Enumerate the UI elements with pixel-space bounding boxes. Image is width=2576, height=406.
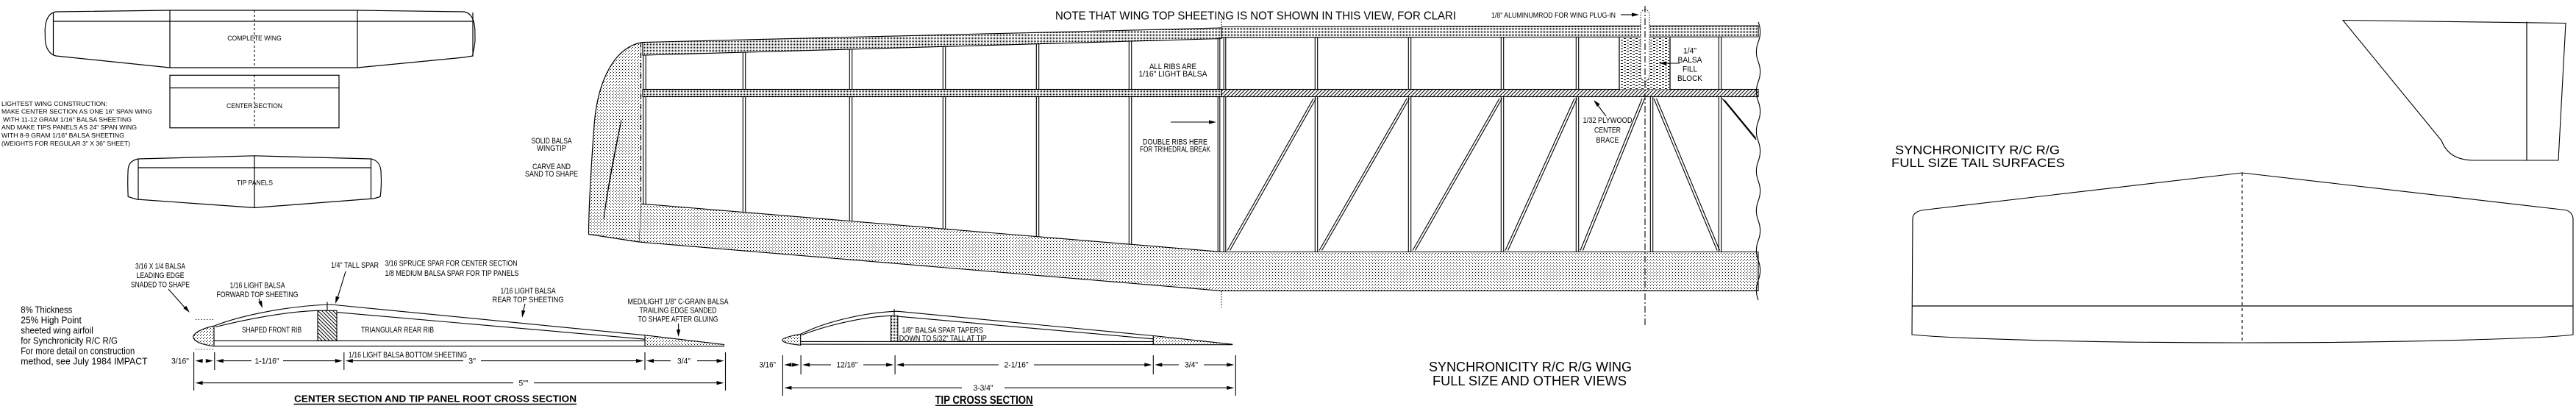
svg-text:SHAPED FRONT RIB: SHAPED FRONT RIB (242, 326, 302, 335)
svg-text:1/4": 1/4" (1683, 47, 1696, 56)
svg-text:3/16 SPRUCE SPAR FOR CENTER SE: 3/16 SPRUCE SPAR FOR CENTER SECTION (385, 260, 518, 268)
svg-text:1/8 MEDIUM BALSA SPAR FOR TIP: 1/8 MEDIUM BALSA SPAR FOR TIP PANELS (385, 269, 519, 278)
svg-text:1/16 LIGHT BALSA BOTTOM SHEETI: 1/16 LIGHT BALSA BOTTOM SHEETING (349, 351, 467, 360)
svg-text:1/32 PLYWOOD: 1/32 PLYWOOD (1583, 116, 1633, 125)
svg-text:WINGTIP: WINGTIP (537, 144, 566, 153)
svg-text:REAR TOP SHEETING: REAR TOP SHEETING (493, 296, 564, 304)
svg-text:12/16": 12/16" (837, 361, 858, 370)
svg-text:3/16": 3/16" (171, 357, 189, 366)
svg-text:1/16 LIGHT BALSA: 1/16 LIGHT BALSA (230, 282, 286, 291)
svg-text:For more detail on constructio: For more detail on construction (21, 346, 135, 357)
svg-text:25% High Point: 25% High Point (21, 315, 82, 326)
svg-text:(WEIGHTS FOR REGULAR 3" X 36": (WEIGHTS FOR REGULAR 3" X 36" SHEET) (1, 140, 130, 147)
svg-text:3/16 X 1/4 BALSA: 3/16 X 1/4 BALSA (135, 263, 186, 271)
svg-text:8% Thickness: 8% Thickness (21, 304, 72, 316)
svg-text:3/16": 3/16" (760, 361, 777, 370)
svg-text:NOTE THAT WING TOP SHEETING IS: NOTE THAT WING TOP SHEETING IS NOT SHOWN… (1055, 10, 1456, 23)
svg-text:DOWN TO 5/32" TALL AT TIP: DOWN TO 5/32" TALL AT TIP (899, 335, 987, 343)
svg-text:MAKE CENTER SECTION AS ONE 16": MAKE CENTER SECTION AS ONE 16" SPAN WING (1, 109, 152, 115)
svg-text:LIGHTEST WING CONSTRUCTION:: LIGHTEST WING CONSTRUCTION: (1, 101, 107, 107)
svg-text:1-1/16": 1-1/16" (255, 357, 279, 366)
svg-text:FILL: FILL (1683, 65, 1697, 74)
svg-text:TIP CROSS SECTION: TIP CROSS SECTION (935, 394, 1033, 406)
svg-text:FULL SIZE TAIL SURFACES: FULL SIZE TAIL SURFACES (1891, 156, 2065, 170)
svg-text:3/4": 3/4" (1185, 361, 1198, 370)
svg-text:TRAILING EDGE SANDED: TRAILING EDGE SANDED (640, 307, 717, 316)
svg-text:TRIANGULAR REAR RIB: TRIANGULAR REAR RIB (361, 326, 434, 335)
svg-text:1/8" BALSA SPAR TAPERS: 1/8" BALSA SPAR TAPERS (902, 326, 984, 335)
svg-text:TO SHAPE AFTER GLUING: TO SHAPE AFTER GLUING (638, 316, 718, 324)
svg-text:FORWARD TOP SHEETING: FORWARD TOP SHEETING (217, 291, 299, 299)
svg-text:CENTER: CENTER (1594, 126, 1621, 135)
svg-text:3/4": 3/4" (677, 357, 691, 366)
svg-text:SNADED TO SHAPE: SNADED TO SHAPE (131, 281, 190, 290)
svg-text:1/4" TALL SPAR: 1/4" TALL SPAR (331, 261, 379, 270)
svg-text:FOR TRIHEDRAL BREAK: FOR TRIHEDRAL BREAK (1140, 146, 1210, 154)
svg-text:COMPLETE WING: COMPLETE WING (227, 35, 282, 43)
svg-text:2-1/16": 2-1/16" (1005, 361, 1029, 370)
svg-text:FULL SIZE AND OTHER VIEWS: FULL SIZE AND OTHER VIEWS (1433, 373, 1627, 388)
svg-text:BRACE: BRACE (1596, 136, 1619, 145)
svg-text:CENTER SECTION AND TIP PANEL R: CENTER SECTION AND TIP PANEL ROOT CROSS … (294, 393, 577, 404)
svg-text:5"": 5"" (519, 379, 529, 388)
svg-text:AND MAKE TIPS PANELS AS 24" SP: AND MAKE TIPS PANELS AS 24" SPAN WING (1, 124, 137, 131)
svg-text:sheeted wing airfoil: sheeted wing airfoil (21, 325, 93, 336)
svg-text:1/8" ALUMINUMROD FOR WING PLUG: 1/8" ALUMINUMROD FOR WING PLUG-IN (1491, 12, 1616, 20)
svg-text:SAND TO SHAPE: SAND TO SHAPE (525, 170, 578, 179)
svg-text:BALSA: BALSA (1678, 56, 1703, 65)
svg-text:MED/LIGHT 1/8" C-GRAIN BALSA: MED/LIGHT 1/8" C-GRAIN BALSA (628, 298, 729, 307)
svg-text:1/16 LIGHT BALSA: 1/16 LIGHT BALSA (501, 287, 557, 296)
svg-text:for Synchronicity R/C R/G: for Synchronicity R/C R/G (21, 335, 118, 346)
svg-text:BLOCK: BLOCK (1677, 74, 1702, 83)
svg-text:LEADING EDGE: LEADING EDGE (137, 271, 185, 280)
svg-text:1/16" LIGHT BALSA: 1/16" LIGHT BALSA (1139, 70, 1208, 79)
svg-text:CENTER SECTION: CENTER SECTION (226, 102, 282, 110)
svg-text:WITH 8-9 GRAM 1/16" BALSA SHEE: WITH 8-9 GRAM 1/16" BALSA SHEETING (1, 132, 124, 139)
svg-text:method, see July 1984 IMPACT: method, see July 1984 IMPACT (21, 356, 147, 367)
svg-text:TIP PANELS: TIP PANELS (237, 179, 273, 188)
svg-text:WITH 11-12 GRAM 1/16" BALSA SH: WITH 11-12 GRAM 1/16" BALSA SHEETING (3, 116, 132, 123)
svg-text:3-3/4": 3-3/4" (974, 384, 993, 393)
svg-text:3": 3" (468, 357, 476, 366)
